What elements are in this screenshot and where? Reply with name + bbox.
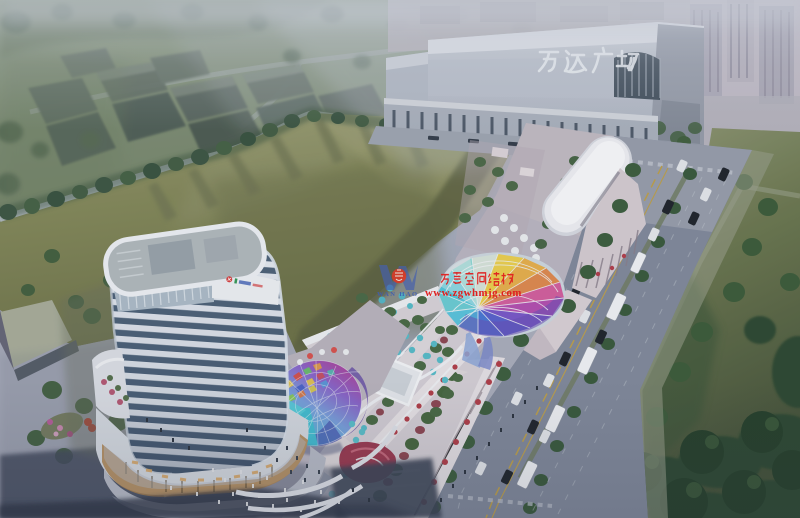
svg-text:WAN HAO: WAN HAO [377,291,418,298]
svg-text:www.zgwhmjg.com: www.zgwhmjg.com [425,287,522,299]
